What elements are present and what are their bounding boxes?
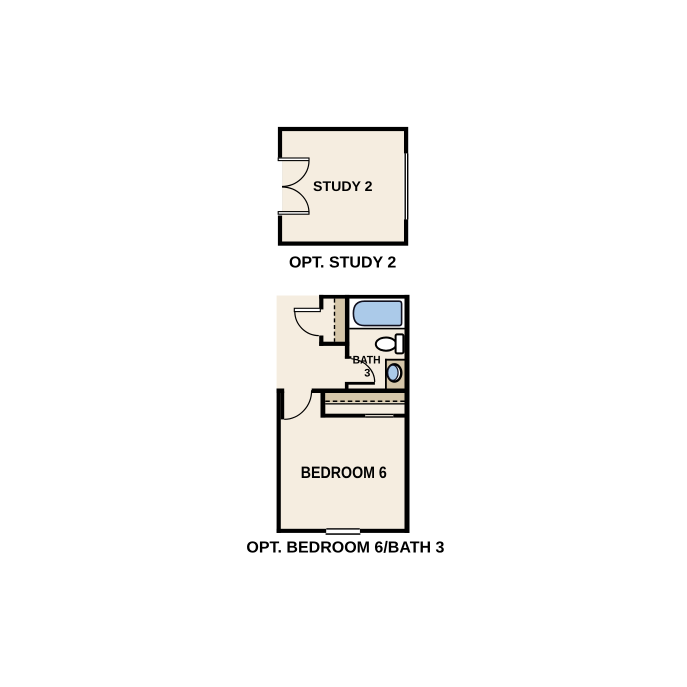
svg-text:OPT. STUDY 2: OPT. STUDY 2 bbox=[289, 254, 396, 271]
svg-text:BEDROOM 6: BEDROOM 6 bbox=[301, 464, 387, 482]
svg-text:BATH: BATH bbox=[353, 355, 381, 367]
svg-text:3: 3 bbox=[364, 368, 370, 380]
svg-text:OPT. BEDROOM 6/BATH 3: OPT. BEDROOM 6/BATH 3 bbox=[246, 540, 444, 557]
svg-text:STUDY 2: STUDY 2 bbox=[313, 178, 373, 194]
